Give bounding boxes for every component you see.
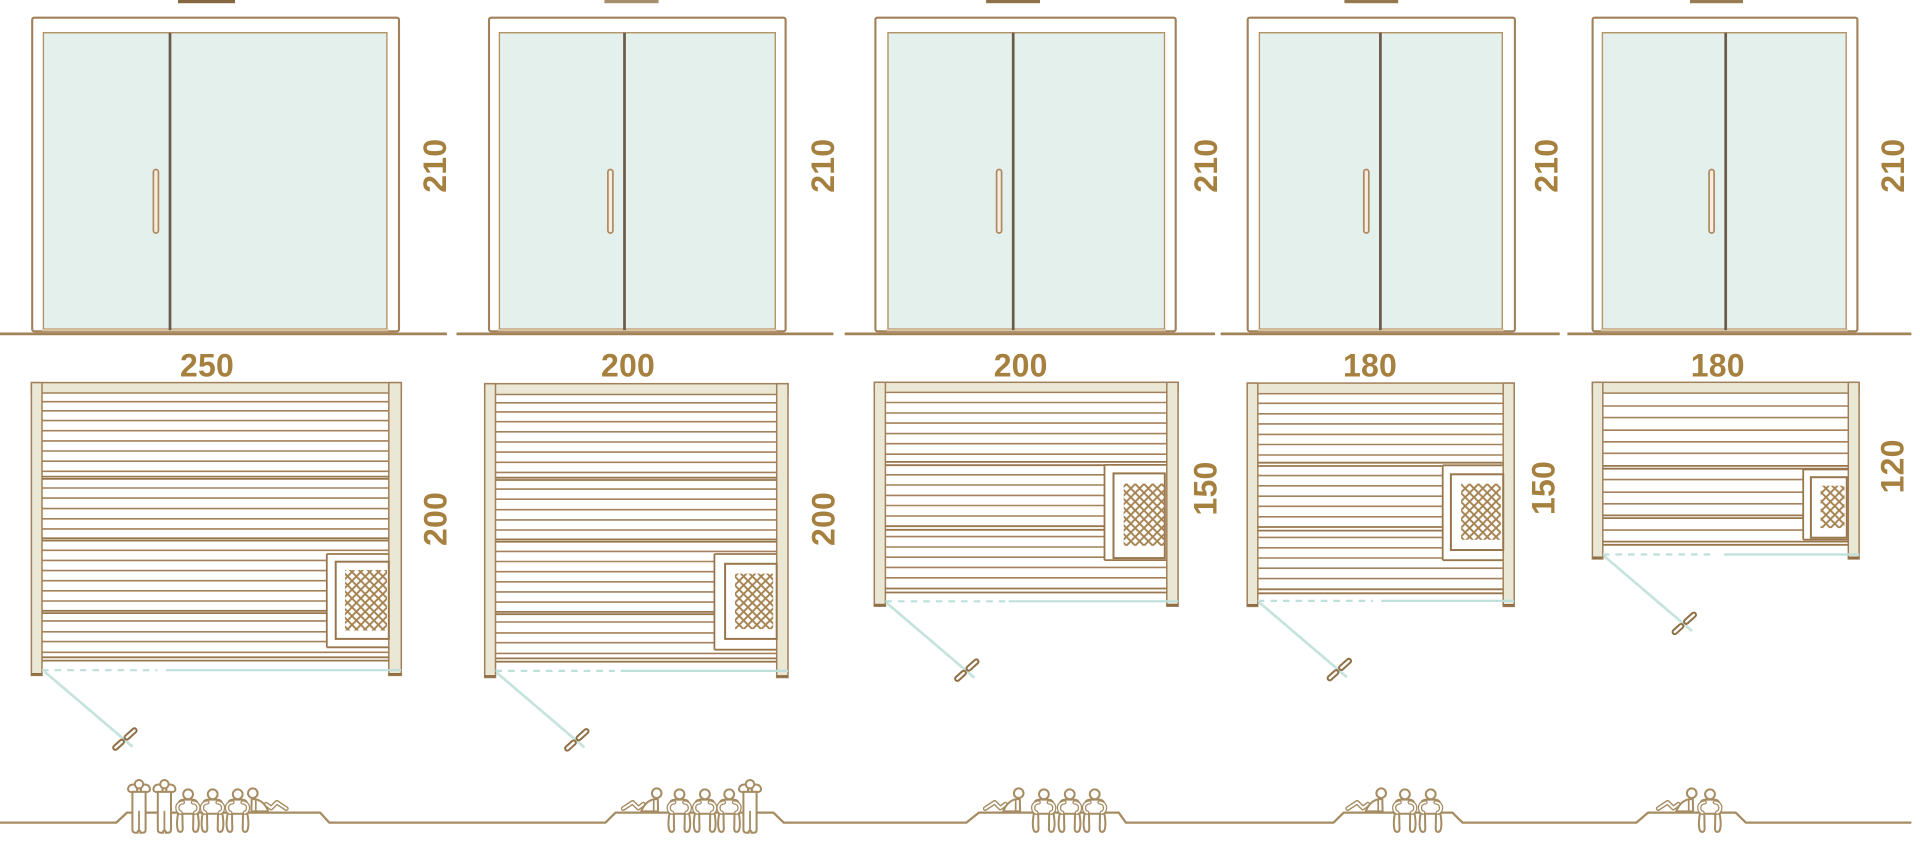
svg-text:180: 180 [1691,348,1745,384]
svg-text:210: 210 [1875,139,1911,193]
svg-text:200: 200 [418,492,454,546]
svg-text:210: 210 [417,139,453,193]
svg-text:200: 200 [601,348,655,384]
svg-text:210: 210 [1529,139,1565,193]
svg-text:150: 150 [1188,462,1224,516]
svg-text:180: 180 [1343,348,1397,384]
svg-text:210: 210 [1188,139,1224,193]
svg-text:210: 210 [805,139,841,193]
svg-text:250: 250 [180,348,234,384]
svg-text:120: 120 [1875,439,1911,493]
svg-text:200: 200 [806,492,842,546]
svg-text:200: 200 [994,348,1048,384]
svg-text:150: 150 [1526,461,1562,515]
